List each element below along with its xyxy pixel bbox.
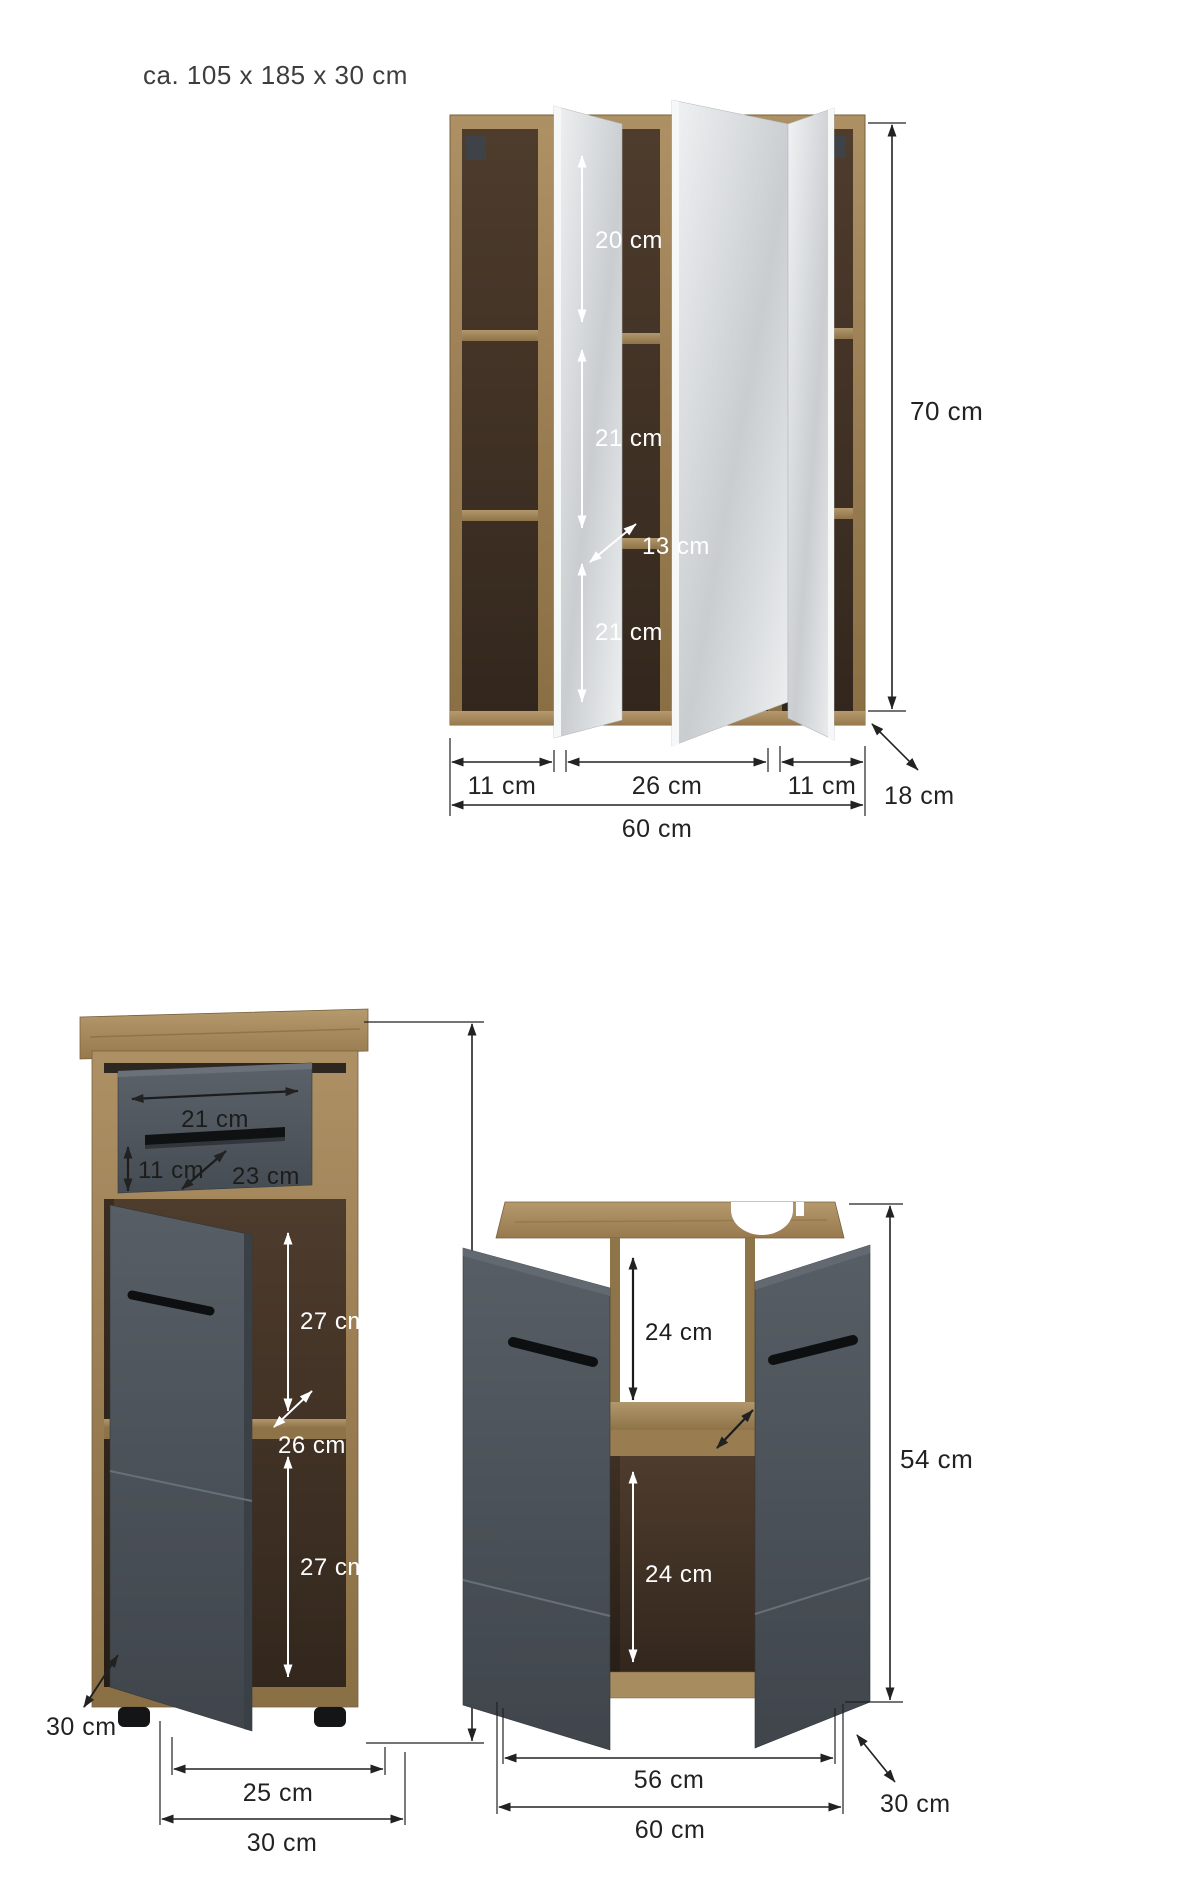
- base-cabinet-door: [110, 1205, 252, 1731]
- dim-height: 54 cm: [900, 1444, 973, 1474]
- mirror-door-right: [788, 108, 834, 740]
- dim-inner-width: 56 cm: [634, 1766, 705, 1794]
- dim-right-width: 11 cm: [788, 772, 857, 800]
- dim-drawer-depth: 23 cm: [232, 1163, 300, 1190]
- dim-shelf-depth: 13 cm: [642, 533, 710, 560]
- dim-height: 70 cm: [910, 396, 983, 426]
- shelf: [462, 330, 538, 341]
- mirror-cabinet-figure: 20 cm 21 cm 13 cm 21 cm 70 cm 11 cm 26 c…: [420, 90, 1180, 860]
- dim-drawer-width: 21 cm: [181, 1106, 249, 1133]
- dim-left-width: 11 cm: [468, 772, 537, 800]
- dim-drawer-height: 11 cm: [138, 1157, 204, 1184]
- page-title: ca. 105 x 185 x 30 cm: [143, 60, 408, 91]
- dim-shelf-middle: 21 cm: [595, 425, 663, 452]
- dim-depth: 18 cm: [884, 782, 955, 810]
- dim-door-width: 25 cm: [243, 1779, 314, 1807]
- wall-bracket: [466, 136, 486, 160]
- dim-shelf-top: 20 cm: [595, 227, 663, 254]
- mirror-doors: [554, 100, 834, 746]
- dim-depth: 30 cm: [46, 1713, 117, 1741]
- dim-compartment-bottom: 24 cm: [645, 1561, 713, 1588]
- dim-compartment-top: 24 cm: [645, 1319, 713, 1346]
- dim-compartment-bottom: 27 cm: [300, 1554, 368, 1581]
- washbasin-cabinet-figure: 24 cm 28 cm 24 cm 54 cm 56 cm 60 cm 30 c…: [425, 1190, 1010, 1880]
- dim-total-width: 30 cm: [247, 1829, 318, 1857]
- door-left: [463, 1248, 610, 1750]
- dim-shelf-depth: 26 cm: [278, 1432, 346, 1459]
- dim-compartment-top: 27 cm: [300, 1308, 368, 1335]
- dim-total-width: 60 cm: [622, 815, 693, 843]
- mirror-door-center: [672, 100, 788, 746]
- dim-shelf-bottom: 21 cm: [595, 619, 663, 646]
- shelf: [462, 510, 538, 521]
- foot: [314, 1707, 346, 1727]
- foot: [118, 1707, 150, 1727]
- dim-depth: 30 cm: [880, 1790, 951, 1818]
- dim-center-width: 26 cm: [632, 772, 703, 800]
- dim-total-width: 60 cm: [635, 1816, 706, 1844]
- door-right: [755, 1245, 870, 1748]
